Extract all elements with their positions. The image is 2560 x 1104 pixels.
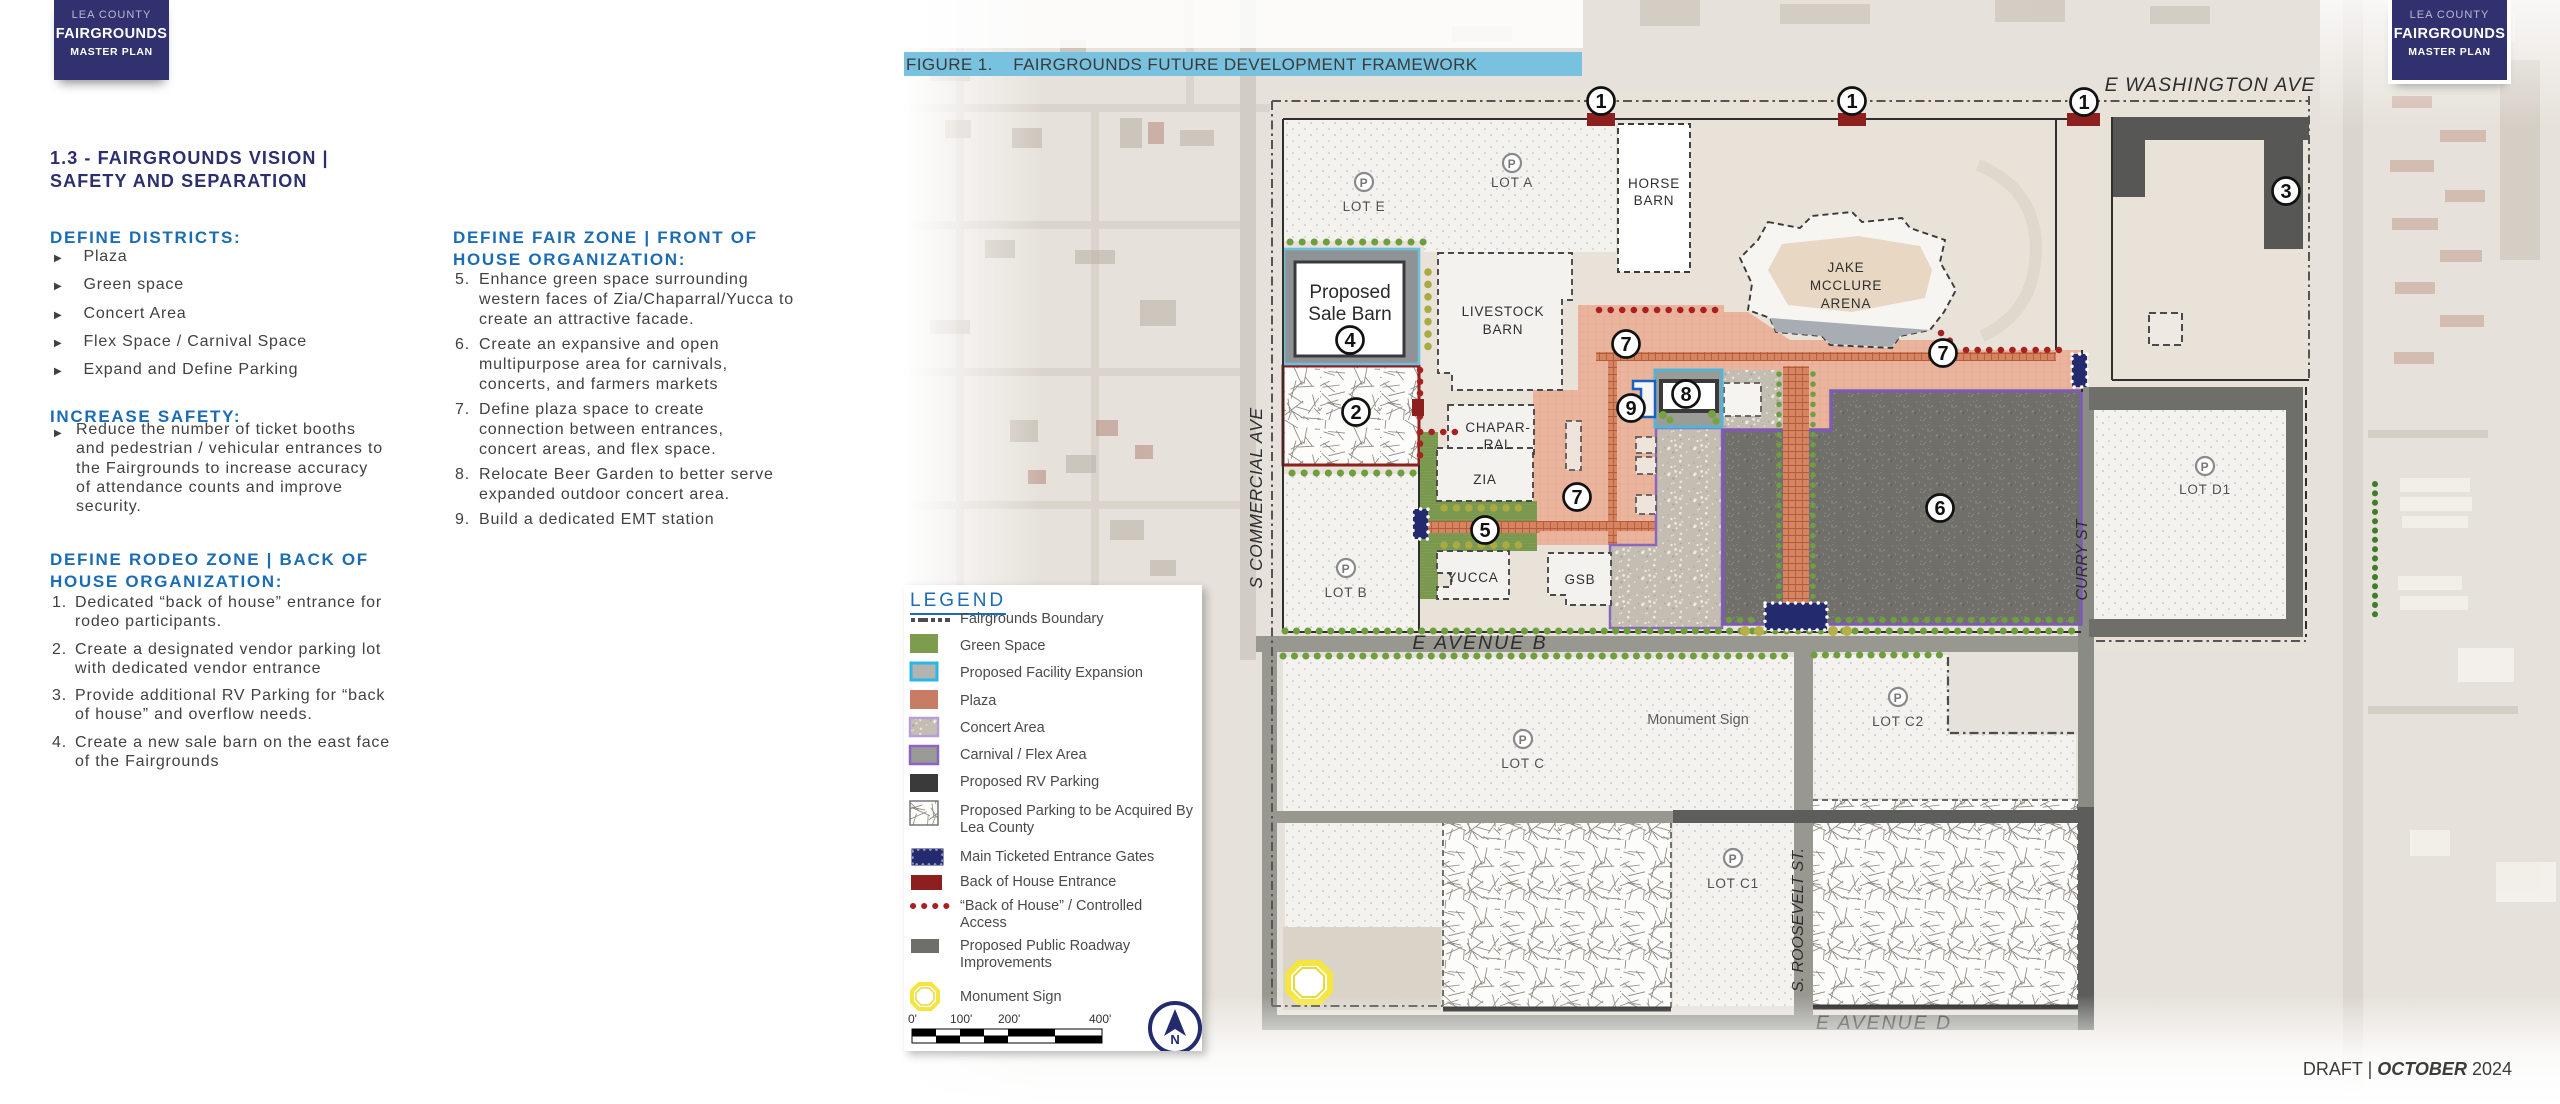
svg-text:JAKE: JAKE [1828, 260, 1865, 275]
svg-text:2: 2 [1350, 402, 1361, 424]
svg-text:S. ROOSEVELT ST.: S. ROOSEVELT ST. [1790, 848, 1807, 992]
svg-text:P: P [1342, 562, 1351, 576]
svg-text:5: 5 [1479, 520, 1490, 542]
svg-text:S COMMERCIAL AVE: S COMMERCIAL AVE [1246, 407, 1266, 588]
svg-text:Proposed: Proposed [1309, 282, 1390, 303]
svg-text:P: P [1508, 157, 1517, 171]
svg-text:P: P [1360, 176, 1369, 190]
svg-text:7: 7 [1620, 334, 1631, 356]
svg-text:7: 7 [1937, 343, 1948, 365]
svg-text:E AVENUE B: E AVENUE B [1412, 632, 1547, 654]
svg-text:HORSE: HORSE [1628, 176, 1680, 191]
svg-text:LOT C2: LOT C2 [1872, 714, 1924, 729]
svg-text:P: P [1894, 691, 1903, 705]
svg-text:LOT C: LOT C [1501, 756, 1545, 771]
svg-text:P: P [1519, 733, 1528, 747]
svg-text:CURRY ST: CURRY ST [2074, 518, 2091, 600]
svg-text:100': 100' [950, 1012, 972, 1026]
svg-text:6: 6 [1934, 498, 1945, 520]
svg-text:1: 1 [2078, 92, 2089, 114]
svg-text:Monument Sign: Monument Sign [1647, 712, 1749, 728]
svg-text:N: N [1170, 1032, 1179, 1047]
svg-text:ARENA: ARENA [1821, 296, 1872, 311]
svg-text:RAL: RAL [1484, 437, 1513, 452]
svg-text:MCCLURE: MCCLURE [1810, 278, 1882, 293]
svg-text:ZIA: ZIA [1473, 472, 1496, 487]
svg-text:LOT A: LOT A [1491, 175, 1533, 190]
svg-text:LOT B: LOT B [1325, 585, 1368, 600]
svg-text:400': 400' [1089, 1012, 1111, 1026]
svg-text:BARN: BARN [1634, 193, 1675, 208]
svg-text:E WASHINGTON AVE: E WASHINGTON AVE [2105, 74, 2316, 96]
svg-text:0': 0' [908, 1012, 917, 1026]
svg-text:7: 7 [1571, 487, 1582, 509]
svg-text:CHAPAR-: CHAPAR- [1465, 420, 1530, 435]
svg-text:9: 9 [1625, 398, 1636, 420]
svg-text:3: 3 [2280, 181, 2291, 203]
svg-text:LOT C1: LOT C1 [1707, 876, 1759, 891]
svg-text:1: 1 [1595, 91, 1606, 113]
svg-text:LIVESTOCK: LIVESTOCK [1462, 304, 1545, 319]
svg-text:Sale Barn: Sale Barn [1308, 304, 1391, 325]
svg-text:P: P [1729, 852, 1738, 866]
svg-text:8: 8 [1680, 384, 1691, 406]
svg-text:LOT D1: LOT D1 [2179, 482, 2231, 497]
svg-text:GSB: GSB [1565, 572, 1596, 587]
svg-text:BARN: BARN [1483, 322, 1524, 337]
svg-text:1: 1 [1846, 91, 1857, 113]
svg-text:P: P [2201, 460, 2210, 474]
svg-text:200': 200' [998, 1012, 1020, 1026]
svg-text:LOT E: LOT E [1343, 199, 1386, 214]
svg-text:YUCCA: YUCCA [1447, 570, 1498, 585]
svg-text:4: 4 [1344, 330, 1356, 352]
